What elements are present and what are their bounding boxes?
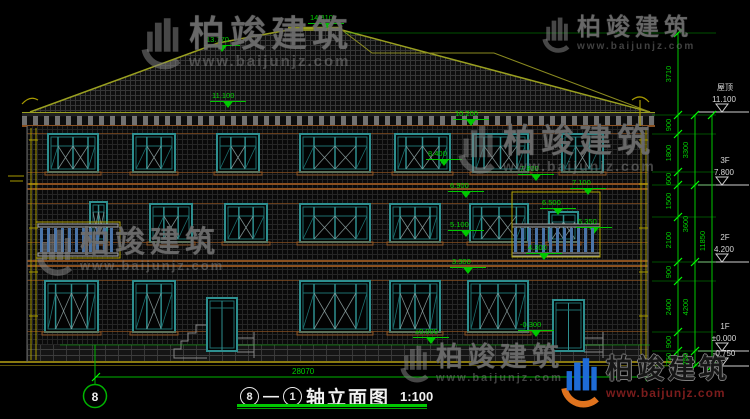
eave-ornaments [22, 97, 649, 126]
title-underline-thick [237, 404, 427, 407]
window-sill [147, 242, 195, 245]
elevation-marker-value: 5.350 [578, 218, 597, 226]
elevation-marker-value: -0.300 [520, 321, 541, 329]
level-label: 3F [702, 156, 748, 165]
window-sill [297, 242, 373, 245]
dim-value: 1500 [665, 181, 673, 221]
axis-separator: — [263, 388, 279, 406]
balcony-top-rail [38, 224, 118, 227]
window-sill [222, 242, 270, 245]
elevation-marker-triangle [531, 175, 541, 182]
dim-value: 3600 [682, 204, 690, 244]
elevation-marker-triangle [466, 120, 476, 127]
dim-value: 900 [665, 252, 673, 292]
brand-logo-icon [558, 356, 601, 417]
dim-value: 2400 [665, 287, 673, 327]
window-sill [465, 332, 531, 335]
level-elevation: 4.200 [700, 245, 748, 254]
elevation-marker-value: 14.810 [310, 14, 333, 22]
overall-width-dim: 28070 [292, 368, 314, 376]
dim-value: 11850 [699, 221, 707, 261]
rain-pipe-right [641, 128, 646, 360]
roof-outline [30, 30, 650, 112]
title-underline-thin [237, 408, 427, 409]
window-sill [387, 242, 443, 245]
dim-value: 4200 [682, 287, 690, 327]
elevation-marker-value: 6.900 [450, 182, 469, 190]
window-sill [42, 332, 101, 335]
window-sill [297, 172, 373, 175]
elevation-marker-value: 4.300 [528, 244, 547, 252]
elevation-marker-value: 6.500 [542, 199, 561, 207]
level-triangle [716, 104, 728, 112]
axis-from-label: 8 [246, 391, 252, 403]
window-sill [214, 172, 262, 175]
stairs-left-door [174, 325, 207, 358]
level-elevation: 7.800 [700, 168, 748, 177]
axis-to-label: 1 [289, 391, 295, 403]
level-label: 2F [702, 233, 748, 242]
window-sill [559, 172, 606, 175]
elevation-marker-value: 7.800 [520, 165, 539, 173]
balcony-balusters [40, 228, 116, 252]
dim-value: 750 [665, 339, 673, 379]
elevation-marker-value: 8.400 [428, 150, 447, 158]
rain-pipe-left [31, 128, 36, 360]
window-sill [392, 172, 453, 175]
cad-elevation-canvas: 8 — 1 轴立面图 1:100 8 28070 柏竣建筑 www.baijun… [0, 0, 750, 419]
elevation-marker-triangle [461, 192, 471, 199]
balcony-bottom-rail [38, 253, 118, 256]
dim-value: 750 [682, 339, 690, 379]
elevation-marker-value: ±0.000 [415, 328, 438, 336]
balcony-balusters [514, 228, 598, 252]
elevation-marker-value: 13.770 [206, 36, 229, 44]
elevation-marker-triangle [531, 331, 541, 338]
elevation-marker-triangle [223, 102, 233, 109]
window [133, 281, 175, 332]
level-elevation: -0.750 [700, 349, 748, 358]
level-label: 1F [702, 322, 748, 331]
level-label: 屋顶 [702, 83, 748, 92]
brand-site: www.baijunjz.com [606, 386, 730, 400]
window-sill [45, 172, 101, 175]
level-triangle [716, 254, 728, 262]
level-elevation: ±0.000 [700, 334, 748, 343]
drawing-scale: 1:100 [400, 389, 433, 404]
elevation-marker-triangle [463, 268, 473, 275]
elevation-marker-value: 10.200 [455, 110, 478, 118]
dim-value: 3710 [665, 54, 673, 94]
dim-value: 3300 [682, 130, 690, 170]
side-roof-ornament [8, 176, 24, 181]
window-sill [130, 172, 178, 175]
elevation-marker-value: 3.300 [452, 258, 471, 266]
brand-logo: 柏竣建筑 www.baijunjz.com [558, 356, 730, 417]
window-sill [130, 332, 178, 335]
level-triangle [716, 177, 728, 185]
elevation-marker-triangle [426, 338, 436, 345]
elevation-marker-value: 7.100 [572, 179, 591, 187]
elevation-marker-value: 5.100 [450, 221, 469, 229]
window-sill [297, 332, 373, 335]
level-elevation: 11.100 [700, 95, 748, 104]
axis-bubble-digit: 8 [84, 390, 106, 404]
elevation-marker-value: 11.100 [212, 92, 234, 100]
elevation-marker-triangle [217, 46, 227, 53]
